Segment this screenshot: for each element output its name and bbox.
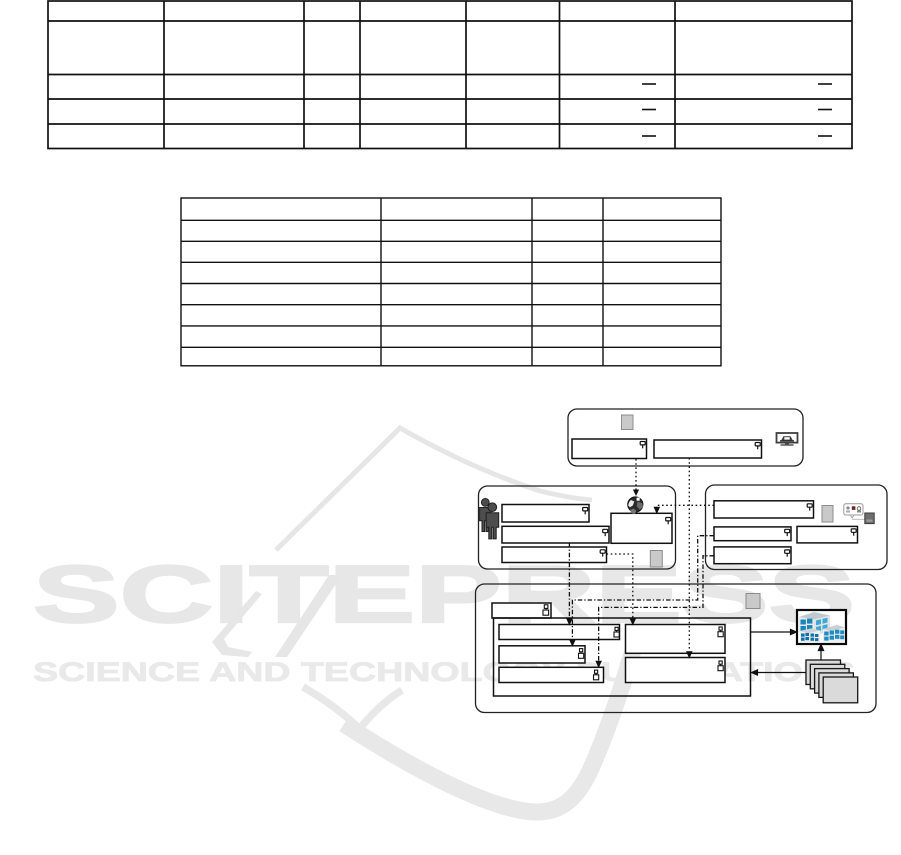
svg-text:SCIENCE AND TECHNOLOGY PUBLICA: SCIENCE AND TECHNOLOGY PUBLICATIONS	[33, 657, 855, 687]
